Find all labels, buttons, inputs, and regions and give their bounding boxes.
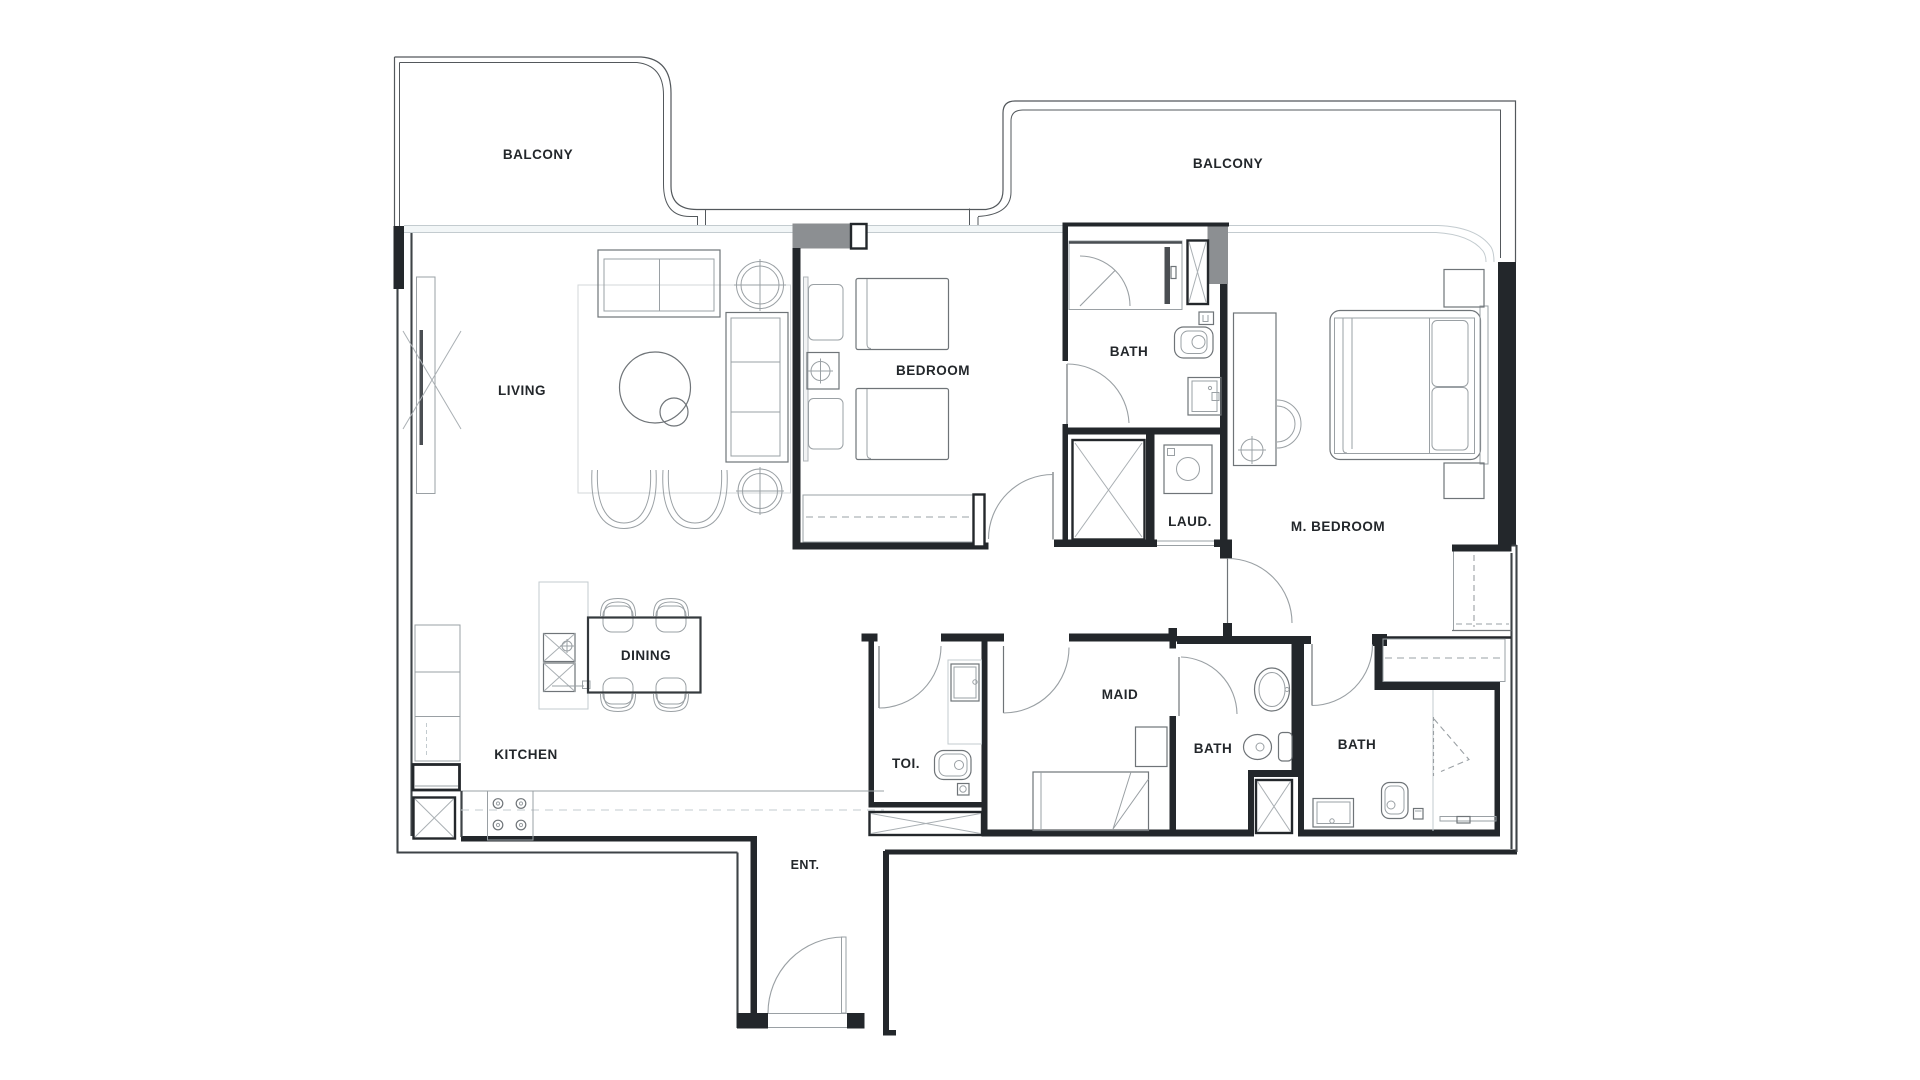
svg-text:TOI.: TOI.	[892, 756, 920, 771]
svg-text:BALCONY: BALCONY	[1193, 156, 1263, 171]
svg-text:KITCHEN: KITCHEN	[494, 747, 558, 762]
svg-text:LAUD.: LAUD.	[1168, 514, 1212, 529]
svg-text:BATH: BATH	[1338, 737, 1377, 752]
svg-text:BATH: BATH	[1110, 344, 1149, 359]
svg-text:ENT.: ENT.	[791, 858, 820, 872]
svg-text:BATH: BATH	[1194, 741, 1233, 756]
svg-text:MAID: MAID	[1102, 687, 1139, 702]
svg-text:LIVING: LIVING	[498, 383, 546, 398]
svg-text:M. BEDROOM: M. BEDROOM	[1291, 519, 1385, 534]
svg-text:BALCONY: BALCONY	[503, 147, 573, 162]
svg-text:DINING: DINING	[621, 648, 671, 663]
svg-text:BEDROOM: BEDROOM	[896, 363, 970, 378]
